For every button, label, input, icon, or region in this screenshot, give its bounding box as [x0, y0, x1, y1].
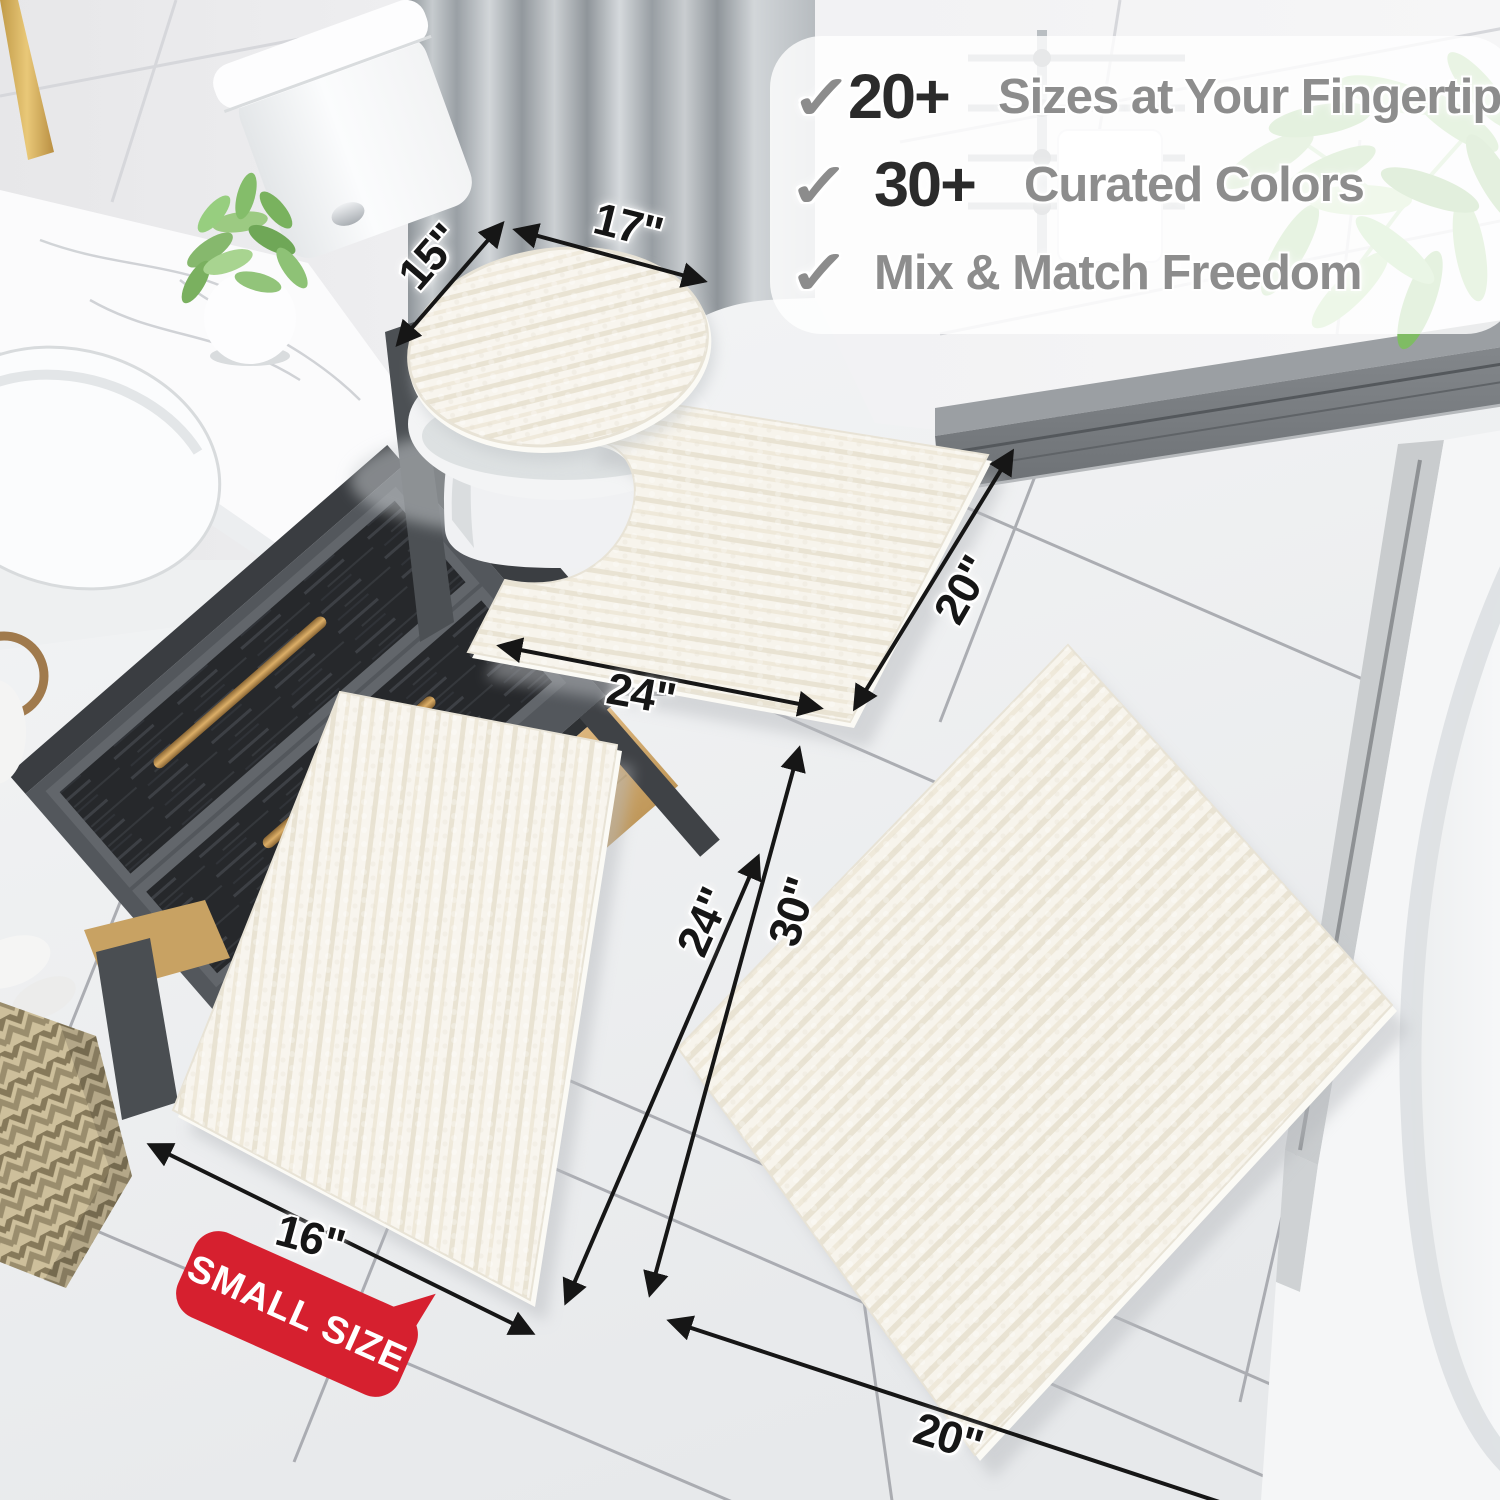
promo-feature-sizes: ✓ 20+ Sizes at Your Fingertips — [796, 61, 1492, 134]
promo-feature-colors: ✓ 30+ Curated Colors — [796, 149, 1492, 222]
feature-label: Sizes at Your Fingertips — [998, 69, 1500, 125]
feature-label: Mix & Match Freedom — [874, 245, 1361, 301]
product-image: MISQ — [0, 0, 1500, 1500]
check-icon: ✓ — [788, 236, 882, 309]
feature-count: 20+ — [848, 61, 998, 133]
check-icon: ✓ — [791, 61, 853, 134]
promo-feature-mix-match: ✓ Mix & Match Freedom — [796, 236, 1492, 309]
promo-overlay: ✓ 20+ Sizes at Your Fingertips ✓ 30+ Cur… — [770, 36, 1500, 334]
feature-label: Curated Colors — [1024, 157, 1364, 213]
feature-count: 30+ — [874, 149, 1024, 221]
check-icon: ✓ — [788, 149, 882, 222]
